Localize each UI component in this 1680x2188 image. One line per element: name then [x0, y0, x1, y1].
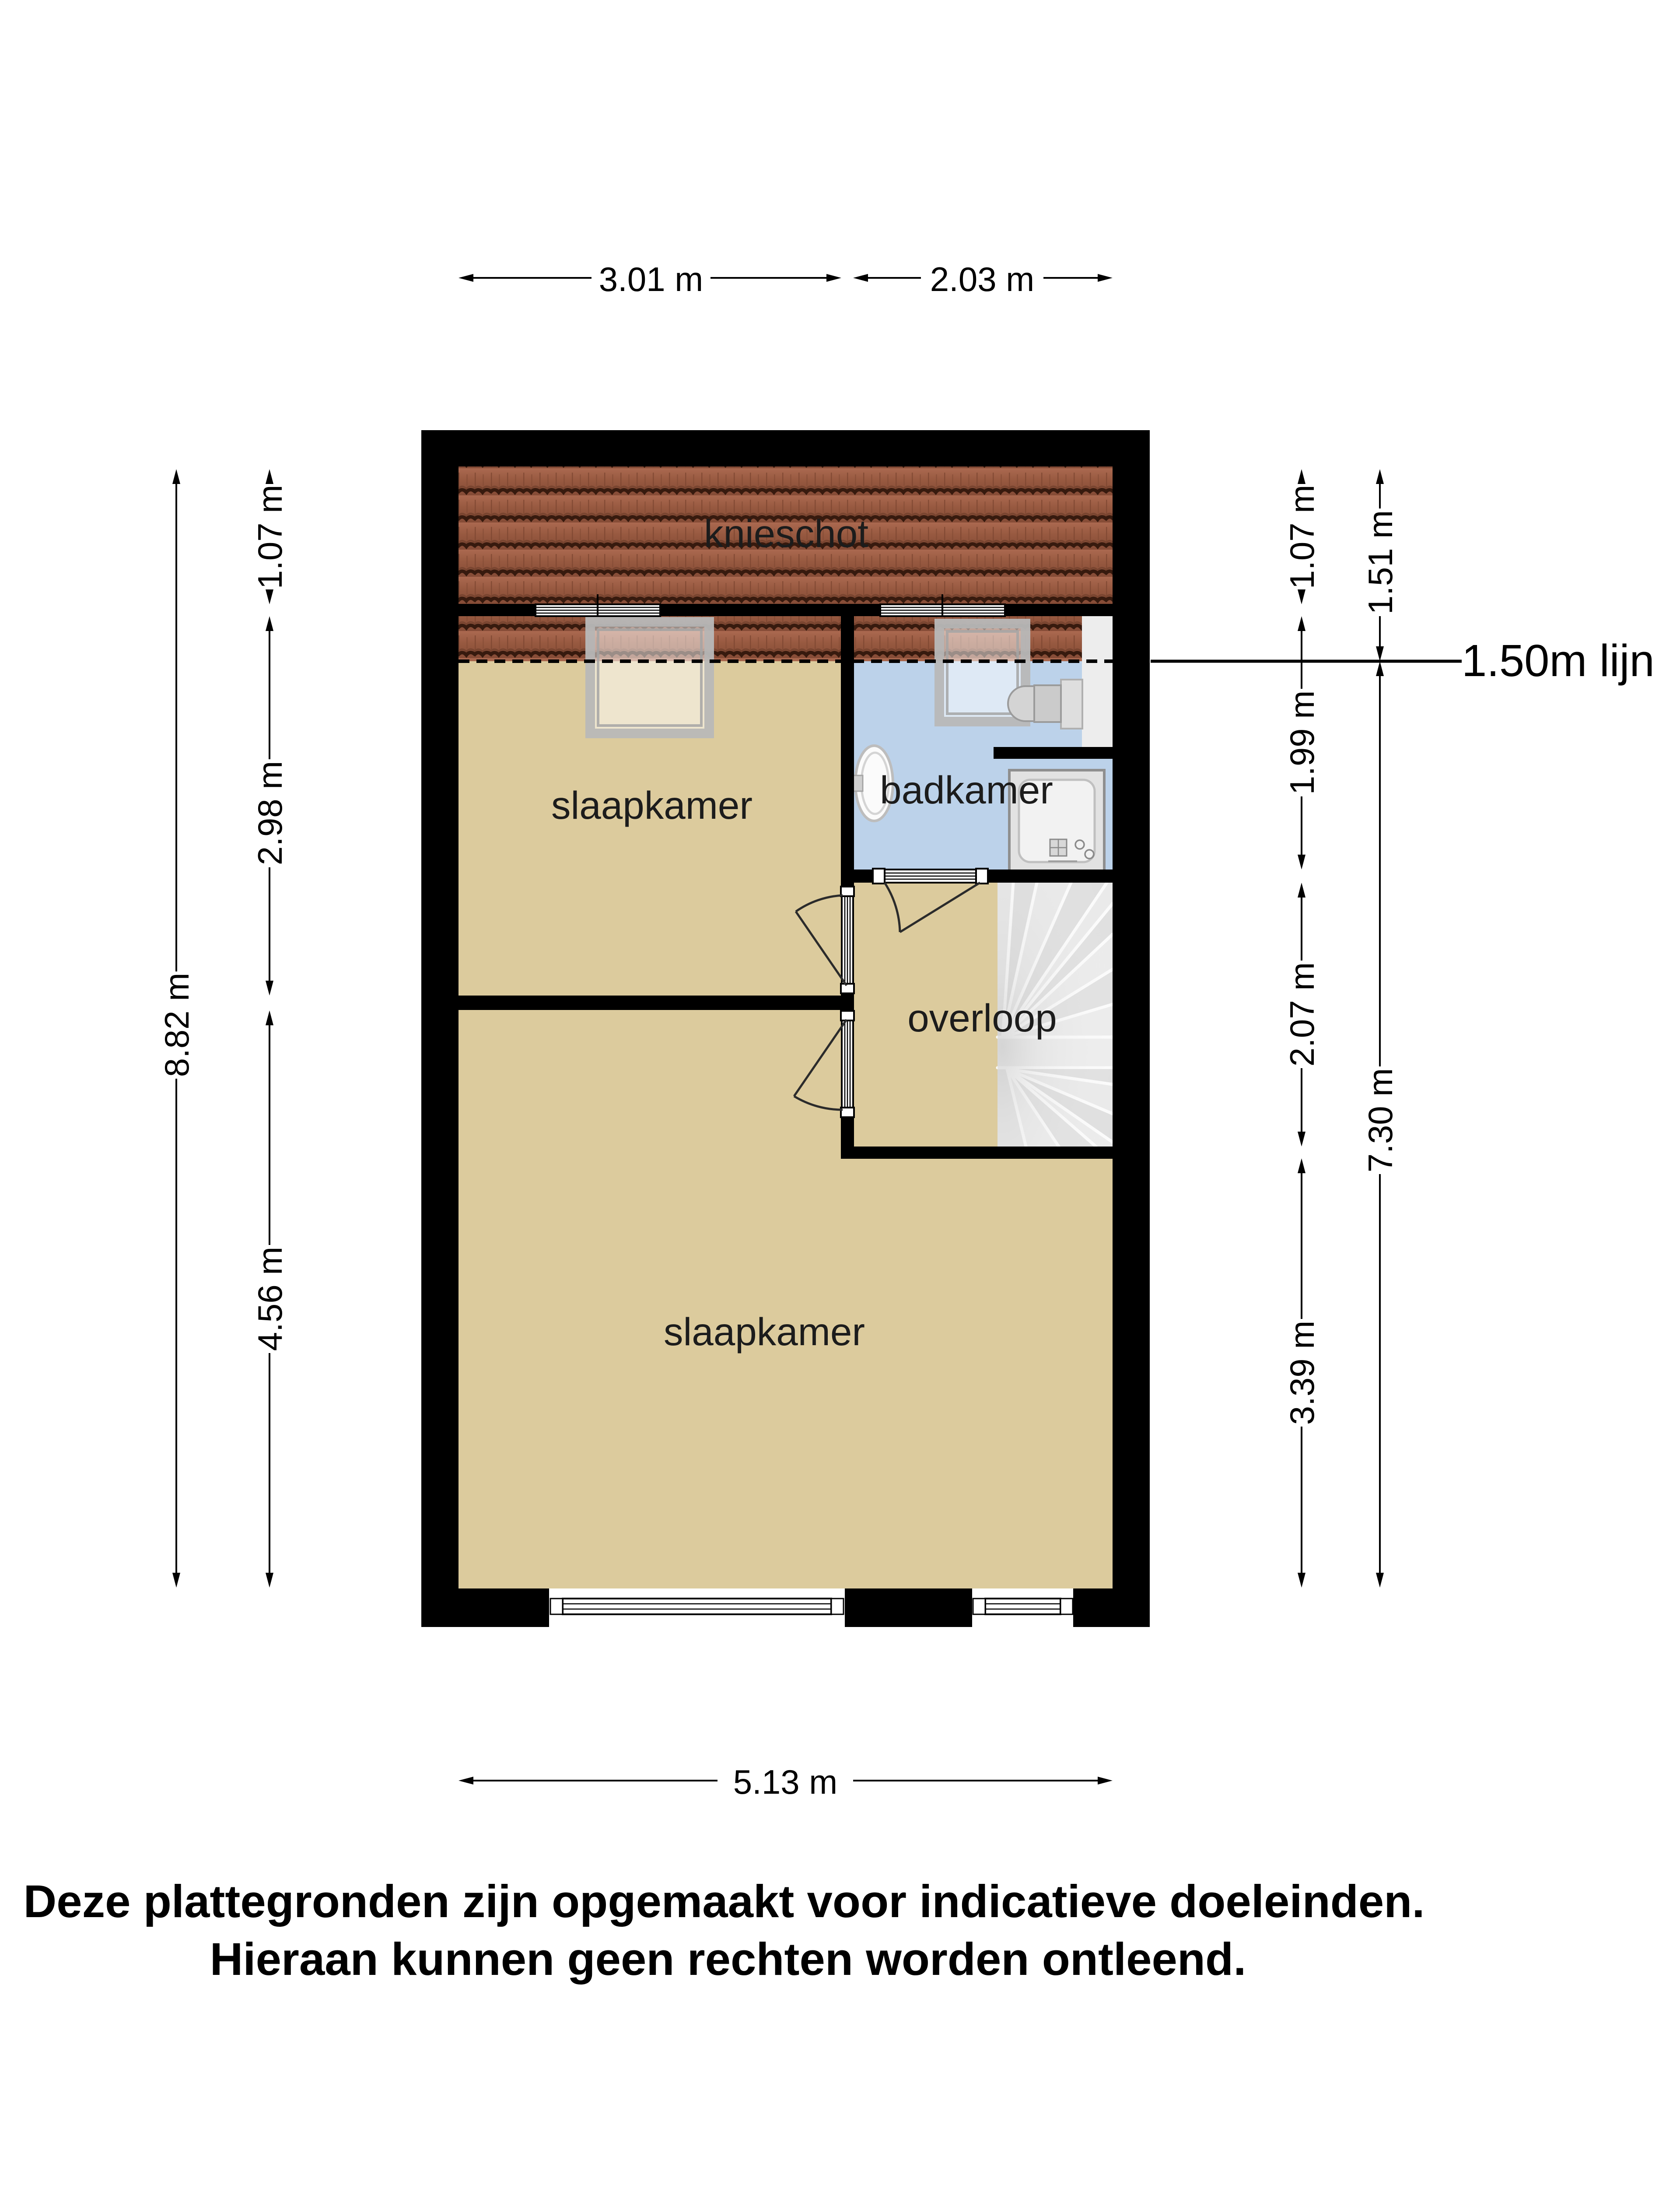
svg-text:2.03 m: 2.03 m	[930, 260, 1034, 298]
svg-text:badkamer: badkamer	[880, 768, 1053, 812]
svg-text:Hieraan kunnen geen rechten wo: Hieraan kunnen geen rechten worden ontle…	[210, 1934, 1246, 1985]
svg-text:2.98 m: 2.98 m	[251, 761, 289, 865]
svg-text:1.99 m: 1.99 m	[1283, 691, 1321, 795]
svg-text:1.07 m: 1.07 m	[1283, 485, 1321, 589]
svg-text:1.51 m: 1.51 m	[1361, 510, 1400, 614]
svg-text:7.30 m: 7.30 m	[1361, 1068, 1400, 1172]
svg-text:3.39 m: 3.39 m	[1283, 1321, 1321, 1425]
svg-text:4.56 m: 4.56 m	[251, 1247, 289, 1351]
svg-text:slaapkamer: slaapkamer	[551, 783, 752, 827]
svg-text:5.13 m: 5.13 m	[733, 1763, 837, 1801]
svg-text:overloop: overloop	[907, 996, 1057, 1040]
svg-text:knieschot: knieschot	[704, 512, 868, 555]
svg-text:1.07 m: 1.07 m	[251, 485, 289, 589]
svg-text:1.50m lijn: 1.50m lijn	[1462, 635, 1655, 686]
svg-text:Deze plattegronden zijn opgema: Deze plattegronden zijn opgemaakt voor i…	[23, 1876, 1424, 1927]
svg-text:slaapkamer: slaapkamer	[664, 1310, 865, 1353]
svg-text:3.01 m: 3.01 m	[599, 260, 703, 298]
svg-text:8.82 m: 8.82 m	[157, 973, 196, 1077]
svg-text:2.07 m: 2.07 m	[1283, 962, 1321, 1066]
